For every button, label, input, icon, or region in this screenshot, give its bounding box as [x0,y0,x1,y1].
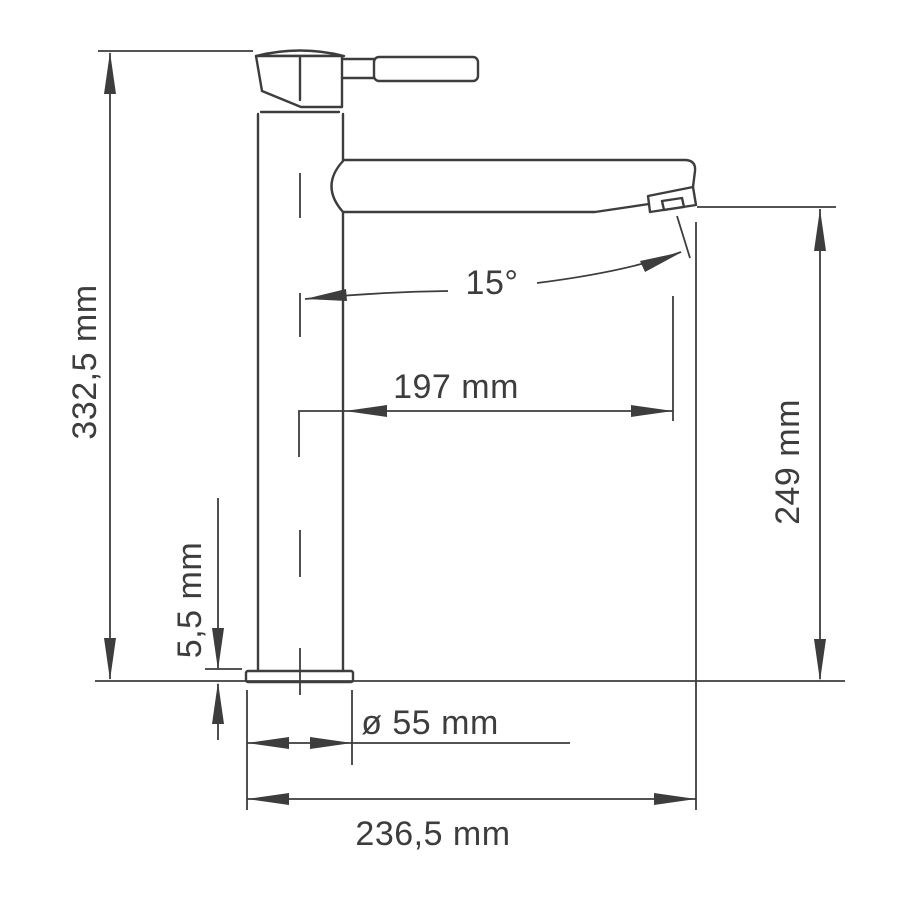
dim-outlet-height-lines [697,207,836,679]
label-spout-reach: 197 mm [393,368,519,406]
handle-grip [374,57,478,81]
label-spout-angle: 15° [466,264,519,302]
handle-stem [342,59,376,78]
label-base-diameter: ø 55 mm [361,704,499,742]
spout-root-fillet [332,161,344,212]
dim-base-diameter: ø 55 mm [247,690,570,810]
dim-spout-reach: 197 mm [299,296,673,457]
dim-spout-angle: 15° [305,216,690,302]
faucet-dimension-drawing: 332,5 mm 15° 197 mm 249 mm 5,5 mm ø 55 m… [0,0,900,900]
dim-plate-thickness: 5,5 mm [171,498,242,740]
label-outlet-height: 249 mm [769,399,807,525]
dim-plate-thickness-arrows [212,628,224,724]
dim-total-height: 332,5 mm [66,51,253,680]
spout [343,160,695,212]
dim-overall-depth: 236,5 mm [247,222,696,853]
aerator [648,187,696,212]
dim-outlet-height: 249 mm [697,207,836,681]
technical-drawing-canvas: 332,5 mm 15° 197 mm 249 mm 5,5 mm ø 55 m… [0,0,900,900]
label-plate-thickness: 5,5 mm [171,542,209,658]
label-total-height: 332,5 mm [66,284,104,439]
dim-plate-thickness-lines [205,498,242,740]
label-overall-depth: 236,5 mm [355,815,510,853]
